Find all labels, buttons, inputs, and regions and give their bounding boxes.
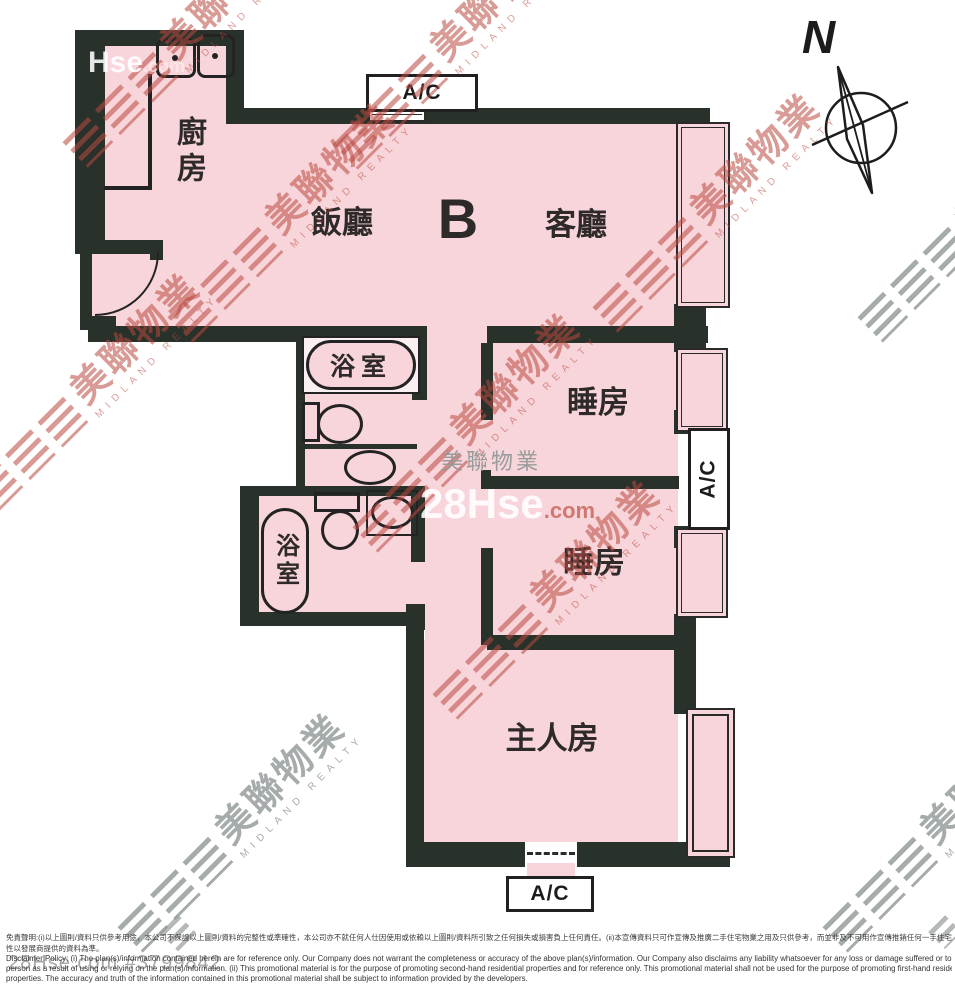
midland-watermark-cn: 美聯物業: [209, 704, 356, 851]
hse-watermark-center: 28Hse .com: [420, 480, 595, 528]
wall-segment: [406, 626, 424, 867]
wall-segment: [406, 842, 525, 867]
hse-watermark-text: 28Hse: [420, 480, 544, 528]
toilet2-tank: [314, 492, 360, 512]
midland-logo-icon: [887, 837, 938, 888]
midland-watermark-cn: 美聯物業: [949, 94, 955, 241]
bathroom2-label: 浴室: [264, 511, 306, 611]
midland-logo-icon: [625, 249, 676, 300]
ac-label: A/C: [697, 459, 721, 498]
midland-watermark: 美聯物業MIDLAND REALTY: [112, 704, 367, 959]
midland-logo-icon: [37, 397, 88, 448]
floor-plan-image: A/C A/C A/C 浴室 浴室 廚房 飯廳 B 客廳 睡房 睡房 主人房 N: [0, 0, 955, 1000]
midland-logo-icon: [5, 429, 56, 480]
living-room-label: 客廳: [536, 208, 616, 242]
hse-watermark-dotcom: .com: [544, 498, 595, 524]
ac-label: A/C: [530, 882, 569, 906]
ac-unit-bottom: A/C: [506, 876, 594, 912]
midland-logo-icon: [922, 227, 955, 278]
midland-logo-icon: [855, 869, 906, 920]
utility-floor-stub: [527, 863, 575, 877]
bathtub2: 浴室: [261, 508, 309, 614]
hse-watermark-text: Hse: [88, 46, 143, 80]
sink-drain: [212, 53, 218, 59]
wall-segment: [240, 486, 259, 626]
disclaimer-en-line2: person as a result of using or relying o…: [6, 964, 952, 974]
toilet1-bowl: [317, 404, 363, 444]
midland-logo-icon: [857, 292, 908, 343]
kitchen-counter-line: [104, 186, 150, 190]
wall-segment: [674, 614, 696, 714]
disclaimer-en-line3: properties. The accuracy and truth of th…: [6, 974, 952, 984]
midland-logo-icon: [465, 636, 516, 687]
window-bedroom2: [676, 528, 728, 618]
wall-segment: [80, 252, 92, 322]
kitchen-label: 廚房: [172, 110, 205, 194]
wall-partition: [305, 444, 417, 449]
wall-segment: [240, 612, 425, 626]
midland-gray-watermark: 美聯物業: [441, 444, 541, 476]
disclaimer-en-line1: Disclaimer Policy: (i) The plan(s)/infor…: [6, 954, 952, 964]
midland-logo-icon: [657, 217, 708, 268]
midland-logo-icon: [232, 227, 283, 278]
midland-logo-icon: [150, 869, 201, 920]
midland-logo-icon: [890, 259, 941, 310]
hse-watermark-partial: Hse .com: [88, 46, 185, 80]
midland-logo-icon: [397, 54, 448, 105]
window-bedroom1: [676, 348, 728, 432]
disclaimer-zh-line1: 免責聲明:(i)以上圖則/資料只供參考用途，本公司不保證以上圖則/資料的完整性或…: [6, 933, 952, 944]
ac-unit-middle: A/C: [688, 428, 730, 530]
bathtub1: 浴室: [306, 340, 416, 390]
disclaimer-block: 免責聲明:(i)以上圖則/資料只供參考用途，本公司不保證以上圖則/資料的完整性或…: [6, 933, 952, 985]
hse-watermark-dotcom: .com: [143, 56, 185, 77]
wall-segment: [674, 304, 706, 352]
midland-watermark-cn: 美聯物業: [914, 704, 955, 851]
midland-logo-icon: [182, 837, 233, 888]
sliding-door-dashed-line: [527, 852, 575, 855]
master-bedroom-label: 主人房: [494, 722, 610, 756]
bathroom1-label: 浴室: [309, 343, 413, 387]
midland-logo-icon: [95, 84, 146, 135]
midland-watermark: 美聯物業MIDLAND REALTY: [817, 704, 955, 959]
midland-logo-icon: [497, 604, 548, 655]
unit-label: B: [428, 188, 488, 250]
disclaimer-zh-line2: 性以發展商提供的資料為準。: [6, 944, 952, 955]
midland-logo-icon: [62, 117, 113, 168]
bay-window-master-bedroom: [686, 708, 735, 858]
bedroom1-label: 睡房: [558, 386, 638, 420]
